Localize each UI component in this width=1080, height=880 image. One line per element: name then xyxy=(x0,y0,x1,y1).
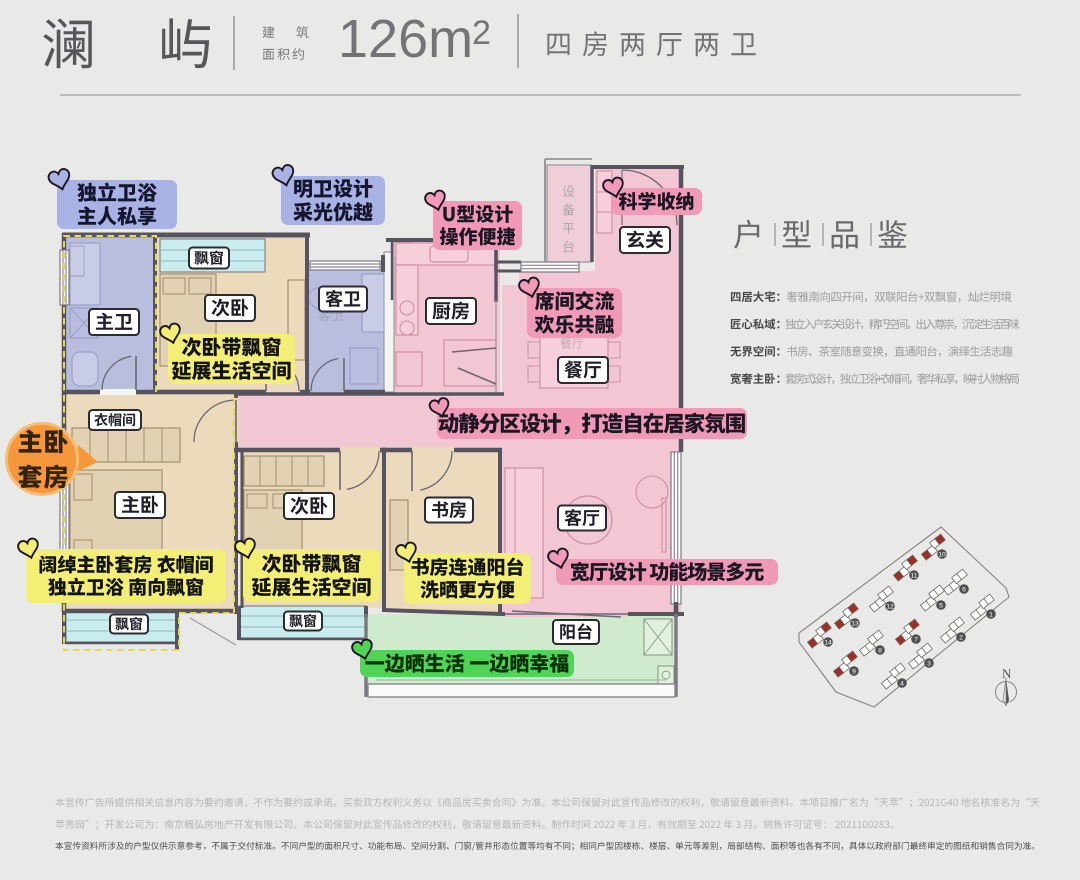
svg-text:N: N xyxy=(1002,666,1012,681)
svg-text:14: 14 xyxy=(824,639,832,646)
svg-text:126m: 126m xyxy=(338,9,473,69)
svg-text:2: 2 xyxy=(959,634,963,641)
svg-text:10: 10 xyxy=(938,551,946,558)
svg-text:1: 1 xyxy=(989,611,993,618)
svg-text:9: 9 xyxy=(852,668,856,675)
svg-text:7: 7 xyxy=(914,636,918,643)
svg-text:13: 13 xyxy=(851,620,859,627)
svg-text:12: 12 xyxy=(886,603,894,610)
svg-text:6: 6 xyxy=(962,586,966,593)
svg-text:8: 8 xyxy=(878,647,882,654)
svg-text:4: 4 xyxy=(900,680,904,687)
svg-text:11: 11 xyxy=(910,572,917,579)
svg-text:5: 5 xyxy=(939,602,943,609)
svg-text:2: 2 xyxy=(472,14,491,52)
svg-text:3: 3 xyxy=(927,660,931,667)
